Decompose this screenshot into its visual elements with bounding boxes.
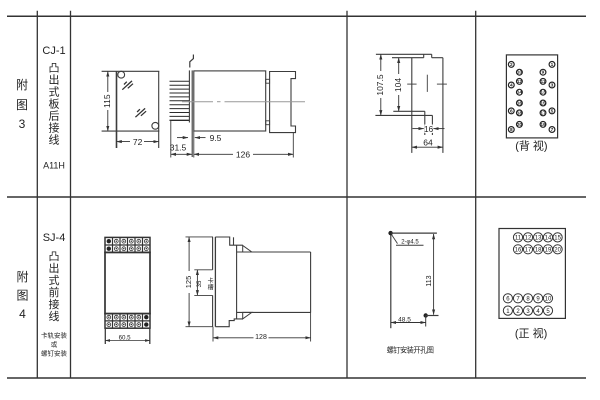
svg-text:9.5: 9.5: [210, 133, 222, 143]
svg-text:16: 16: [515, 248, 522, 254]
svg-text:式: 式: [49, 86, 60, 99]
svg-text:48.5: 48.5: [398, 316, 411, 323]
svg-text:10: 10: [545, 297, 552, 303]
svg-text:13: 13: [540, 90, 546, 96]
svg-text:15: 15: [540, 101, 546, 107]
svg-text:7: 7: [551, 127, 554, 133]
svg-text:12: 12: [525, 236, 532, 242]
svg-text:1: 1: [551, 62, 554, 68]
svg-text:螺钉安装开孔图: 螺钉安装开孔图: [387, 345, 434, 354]
svg-text:CJ-1: CJ-1: [42, 45, 65, 57]
svg-text:125: 125: [184, 276, 193, 289]
svg-text:2: 2: [516, 309, 520, 315]
svg-text:A11H: A11H: [43, 161, 65, 171]
svg-text:19: 19: [545, 248, 552, 254]
svg-text:接: 接: [49, 298, 60, 311]
svg-text:7: 7: [516, 297, 520, 303]
svg-text:16: 16: [424, 125, 433, 134]
svg-text:线: 线: [49, 309, 60, 323]
svg-text:15: 15: [554, 236, 561, 242]
svg-text:128: 128: [255, 334, 267, 341]
svg-text:104: 104: [393, 78, 403, 92]
svg-text:出: 出: [49, 261, 60, 275]
svg-text:4: 4: [510, 83, 513, 89]
svg-text:13: 13: [535, 236, 542, 242]
svg-text:20: 20: [517, 122, 523, 128]
svg-text:8: 8: [526, 297, 530, 303]
svg-text:14: 14: [545, 236, 552, 242]
svg-text:11: 11: [515, 236, 522, 242]
svg-text:113: 113: [426, 275, 433, 286]
svg-text:9: 9: [542, 70, 545, 76]
svg-text:槽: 槽: [208, 283, 214, 291]
svg-text:60.5: 60.5: [119, 335, 132, 342]
svg-text:3: 3: [19, 117, 26, 131]
svg-text:14: 14: [517, 90, 523, 96]
svg-text:前: 前: [49, 285, 60, 299]
svg-text:3: 3: [551, 83, 554, 89]
svg-text:(背 视): (背 视): [515, 139, 547, 153]
svg-text:8: 8: [510, 127, 513, 133]
svg-text:20: 20: [554, 248, 561, 254]
svg-text:板: 板: [49, 97, 60, 111]
svg-text:115: 115: [102, 94, 112, 108]
svg-text:凸: 凸: [49, 63, 60, 75]
svg-text:2-φ4.5: 2-φ4.5: [401, 240, 419, 246]
svg-text:18: 18: [535, 248, 542, 254]
svg-text:3: 3: [526, 309, 530, 315]
svg-text:6: 6: [510, 108, 513, 114]
svg-text:18: 18: [517, 110, 523, 116]
svg-text:6: 6: [506, 297, 510, 303]
svg-text:11: 11: [540, 79, 545, 85]
svg-text:图: 图: [16, 98, 28, 112]
svg-text:后: 后: [49, 110, 60, 123]
svg-text:1: 1: [506, 309, 510, 315]
svg-text:附: 附: [16, 78, 28, 92]
svg-text:卡: 卡: [208, 277, 214, 285]
svg-text:SJ-4: SJ-4: [43, 232, 66, 244]
svg-text:出: 出: [49, 73, 60, 87]
svg-text:线: 线: [49, 133, 60, 147]
svg-text:10: 10: [517, 70, 523, 76]
svg-text:107.5: 107.5: [375, 74, 385, 96]
svg-text:12: 12: [517, 79, 523, 85]
svg-text:(正 视): (正 视): [515, 326, 547, 340]
svg-text:64: 64: [423, 138, 433, 148]
svg-text:72: 72: [133, 137, 143, 147]
svg-text:附: 附: [16, 270, 28, 284]
svg-text:5: 5: [546, 309, 550, 315]
svg-text:35: 35: [197, 280, 203, 287]
svg-text:126: 126: [236, 150, 250, 160]
svg-text:图: 图: [16, 289, 28, 303]
svg-text:式: 式: [49, 274, 60, 287]
svg-text:31.5: 31.5: [170, 142, 187, 152]
svg-text:5: 5: [551, 108, 554, 114]
svg-text:17: 17: [540, 110, 546, 116]
svg-text:19: 19: [540, 122, 546, 128]
svg-text:卡轨安装: 卡轨安装: [41, 331, 68, 340]
svg-text:螺钉安装: 螺钉安装: [41, 349, 68, 358]
svg-text:9: 9: [536, 297, 540, 303]
svg-text:凸: 凸: [49, 251, 60, 263]
svg-text:2: 2: [510, 62, 513, 68]
svg-text:4: 4: [19, 307, 26, 321]
svg-text:4: 4: [536, 309, 540, 315]
svg-text:接: 接: [49, 122, 60, 135]
svg-text:或: 或: [51, 340, 58, 349]
svg-text:17: 17: [525, 248, 532, 254]
svg-text:16: 16: [517, 101, 523, 107]
